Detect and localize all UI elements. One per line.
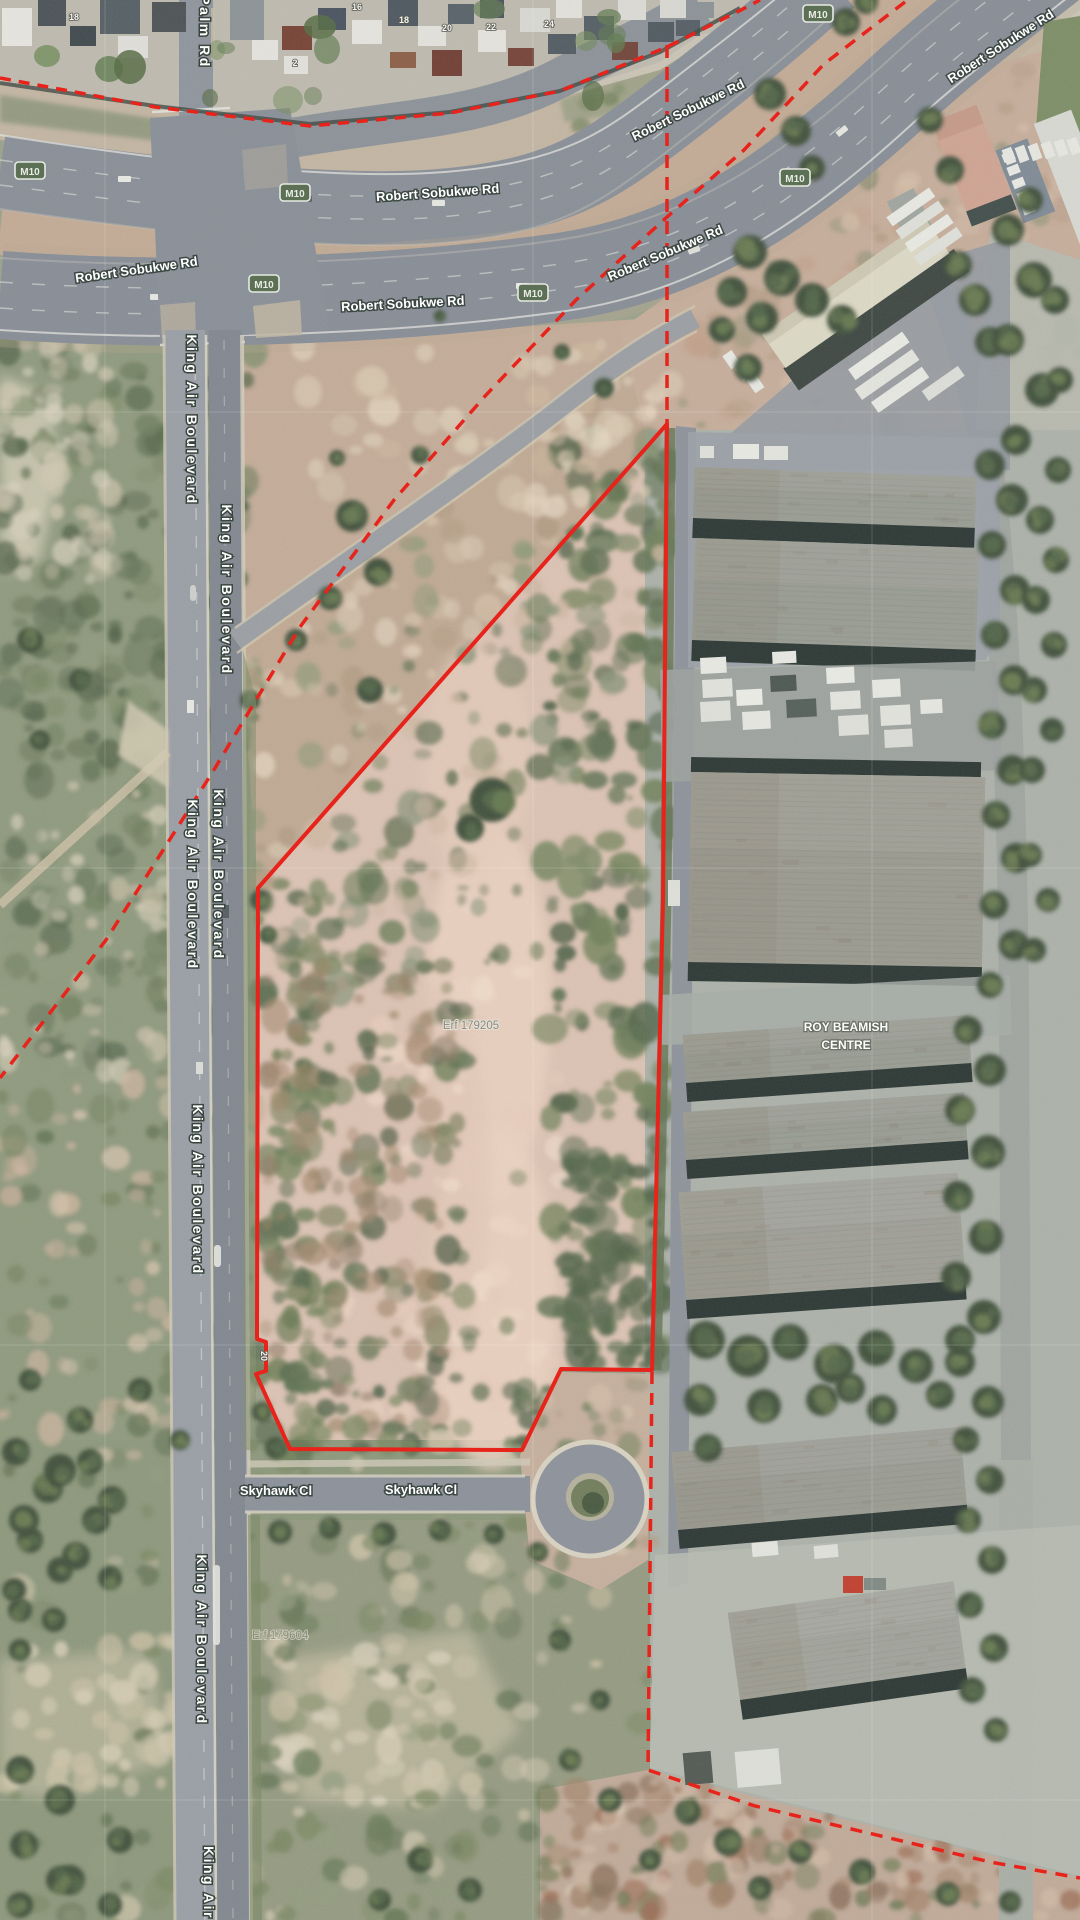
svg-text:M10: M10: [785, 174, 805, 185]
svg-text:King Air Boulevard: King Air Boulevard: [184, 334, 200, 505]
svg-text:20: 20: [442, 23, 452, 33]
svg-text:ROY BEAMISH: ROY BEAMISH: [804, 1020, 888, 1034]
svg-text:Skyhawk Cl: Skyhawk Cl: [240, 1483, 312, 1498]
svg-text:King Air Boulevard: King Air Boulevard: [219, 504, 235, 675]
svg-text:18: 18: [399, 15, 409, 25]
svg-text:18: 18: [69, 12, 79, 22]
svg-text:M10: M10: [808, 10, 828, 21]
svg-text:M10: M10: [523, 289, 543, 300]
svg-text:CENTRE: CENTRE: [821, 1038, 870, 1052]
svg-text:Palm Rd: Palm Rd: [197, 0, 213, 69]
svg-text:King Air Boulevard: King Air Boulevard: [211, 789, 227, 960]
svg-text:16: 16: [352, 2, 362, 12]
svg-text:King Air Boulevard: King Air Boulevard: [194, 1554, 210, 1725]
svg-text:20: 20: [259, 1351, 269, 1361]
svg-text:Erf 179604: Erf 179604: [252, 1630, 309, 1642]
svg-text:M10: M10: [254, 280, 274, 291]
svg-text:Skyhawk Cl: Skyhawk Cl: [385, 1482, 457, 1497]
svg-text:King Air Bo: King Air Bo: [201, 1846, 217, 1920]
svg-text:King Air Boulevard: King Air Boulevard: [185, 799, 201, 970]
svg-text:M10: M10: [20, 167, 40, 178]
svg-text:24: 24: [544, 19, 554, 29]
svg-text:Erf 179205: Erf 179205: [443, 1020, 499, 1032]
svg-text:2: 2: [292, 58, 297, 68]
svg-text:22: 22: [486, 22, 496, 32]
svg-text:M10: M10: [285, 189, 305, 200]
svg-text:King Air Boulevard: King Air Boulevard: [190, 1104, 206, 1275]
